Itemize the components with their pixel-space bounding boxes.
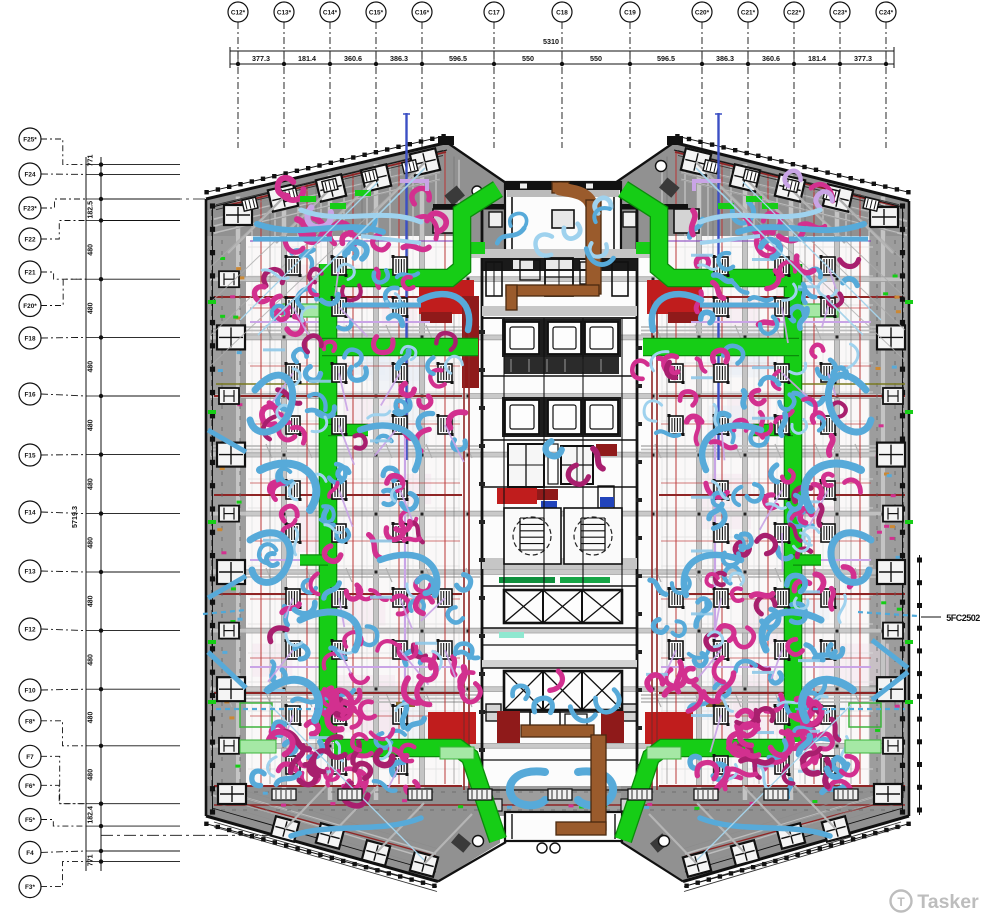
- svg-text:F13: F13: [24, 569, 35, 576]
- svg-text:C13*: C13*: [277, 10, 292, 17]
- svg-text:C24*: C24*: [879, 10, 894, 17]
- svg-text:F21: F21: [24, 270, 35, 277]
- svg-text:550: 550: [522, 54, 534, 63]
- svg-text:F25*: F25*: [23, 137, 37, 144]
- svg-text:596.5: 596.5: [657, 54, 675, 63]
- svg-text:F8*: F8*: [25, 718, 35, 725]
- svg-text:360.6: 360.6: [762, 54, 780, 63]
- svg-text:596.5: 596.5: [449, 54, 467, 63]
- svg-text:C17: C17: [488, 10, 500, 17]
- svg-text:C15*: C15*: [369, 10, 384, 17]
- svg-text:182.4: 182.4: [88, 806, 95, 824]
- svg-text:360.6: 360.6: [344, 54, 362, 63]
- svg-text:C12*: C12*: [231, 10, 246, 17]
- svg-text:5FC2502: 5FC2502: [946, 613, 980, 623]
- svg-text:F14: F14: [24, 510, 35, 517]
- svg-text:F16: F16: [24, 392, 35, 399]
- svg-text:182.5: 182.5: [88, 201, 95, 219]
- svg-text:C20*: C20*: [695, 10, 710, 17]
- svg-text:F23*: F23*: [23, 206, 37, 213]
- svg-text:480: 480: [87, 244, 94, 256]
- svg-text:C22*: C22*: [787, 10, 802, 17]
- svg-text:181.4: 181.4: [808, 54, 826, 63]
- svg-text:T: T: [897, 895, 905, 909]
- svg-text:C18: C18: [556, 10, 568, 17]
- svg-text:5719.3: 5719.3: [70, 506, 79, 528]
- svg-text:F7: F7: [26, 754, 34, 761]
- svg-text:F18: F18: [24, 336, 35, 343]
- svg-text:Tasker: Tasker: [917, 891, 979, 913]
- svg-text:F22: F22: [24, 237, 35, 244]
- svg-text:C14*: C14*: [323, 10, 338, 17]
- svg-text:5310: 5310: [543, 37, 559, 46]
- svg-text:480: 480: [88, 302, 95, 314]
- svg-text:386.3: 386.3: [390, 54, 408, 63]
- svg-text:480: 480: [88, 769, 95, 781]
- svg-text:480: 480: [88, 419, 95, 431]
- svg-text:F10: F10: [24, 688, 35, 695]
- svg-text:F12: F12: [24, 627, 35, 634]
- svg-text:181.4: 181.4: [298, 54, 316, 63]
- svg-text:C16*: C16*: [415, 10, 430, 17]
- svg-text:F24: F24: [24, 172, 35, 179]
- svg-text:F3*: F3*: [25, 884, 35, 891]
- svg-text:386.3: 386.3: [716, 54, 734, 63]
- svg-text:F4: F4: [26, 850, 34, 857]
- svg-text:480: 480: [88, 361, 95, 373]
- svg-text:C23*: C23*: [833, 10, 848, 17]
- svg-text:480: 480: [88, 595, 95, 607]
- svg-text:C21*: C21*: [741, 10, 756, 17]
- svg-text:F20*: F20*: [23, 303, 37, 310]
- svg-text:771: 771: [88, 854, 95, 866]
- svg-text:550: 550: [590, 54, 602, 63]
- svg-text:377.3: 377.3: [252, 54, 270, 63]
- svg-text:C19: C19: [624, 10, 636, 17]
- svg-text:480: 480: [88, 654, 95, 666]
- svg-text:F15: F15: [24, 453, 35, 460]
- svg-text:F6*: F6*: [25, 783, 35, 790]
- svg-text:771: 771: [88, 155, 95, 167]
- svg-text:480: 480: [88, 537, 95, 549]
- svg-text:377.3: 377.3: [854, 54, 872, 63]
- svg-text:480: 480: [88, 712, 95, 724]
- svg-text:480: 480: [88, 478, 95, 490]
- svg-text:F5*: F5*: [25, 817, 35, 824]
